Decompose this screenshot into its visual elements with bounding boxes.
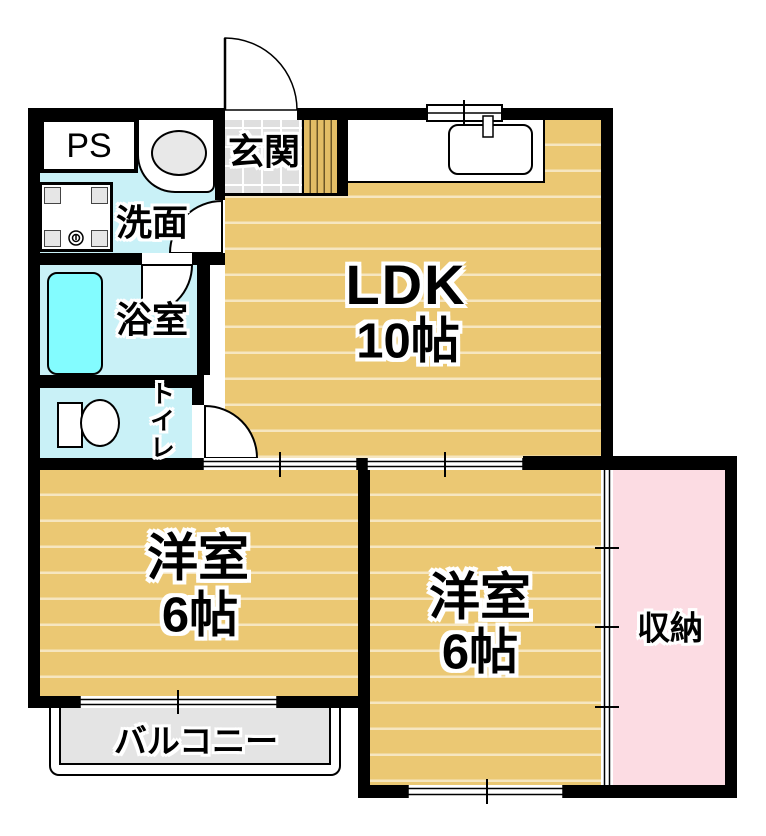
wall-ldk-right: [601, 108, 613, 470]
ldk-size-label: 10帖: [356, 318, 460, 367]
entrance-label: 玄関: [228, 134, 300, 170]
bedroom-left-label: 洋室: [147, 533, 249, 584]
wall-room-divider: [358, 458, 370, 798]
balcony-label: バルコニー: [114, 725, 278, 758]
entrance-door-arc-icon: [225, 38, 297, 110]
wall-mid-left: [28, 458, 203, 470]
ldk-label: LDK: [345, 257, 466, 313]
pan-corner-icon: [44, 230, 61, 247]
wall-bottom-right-b: [563, 785, 737, 798]
wall-top-right: [297, 108, 613, 120]
storage-label: 収納: [637, 612, 703, 645]
bedroom-left-size-label: 6帖: [162, 592, 238, 641]
washer-pan: [39, 182, 113, 252]
washroom-doorway-gap: [215, 200, 225, 253]
wall-toilet-right: [192, 375, 204, 458]
washbasin-icon: [151, 130, 207, 176]
pan-corner-icon: [91, 187, 108, 204]
kitchen-sink: [448, 124, 533, 175]
washroom-label: 洗面: [116, 205, 188, 241]
wall-wash-bath-a: [28, 253, 142, 265]
sliding-door-left: [203, 458, 357, 470]
pan-corner-icon: [44, 187, 61, 204]
wall-bottom-left-b: [277, 696, 370, 708]
floor-plan: PS 玄関 洗面 浴室 トイレ LDK 10帖 洋室 6帖 洋室 6帖 収納 バ…: [0, 0, 766, 836]
pipe-space-label: PS: [66, 129, 111, 163]
wall-right-outer: [725, 456, 737, 798]
bathroom-doorway-gap: [142, 253, 192, 265]
sliding-door-right: [367, 458, 523, 470]
washbasin-vanity: [137, 120, 215, 193]
wall-washroom-right: [215, 108, 225, 200]
wall-left-outer: [28, 108, 40, 708]
bathtub-icon: [47, 272, 103, 375]
wall-bottom-left-a: [28, 696, 80, 708]
wall-bottom-right-a: [358, 785, 408, 798]
pan-corner-icon: [91, 230, 108, 247]
wall-top-left: [28, 108, 225, 120]
bedroom-right-label: 洋室: [429, 572, 531, 623]
storage-sliding-door: [601, 470, 613, 785]
bedroom-right-window: [408, 785, 563, 798]
wall-mid-right: [523, 456, 737, 470]
wall-bathroom-right: [197, 253, 210, 375]
toilet-bowl-icon: [80, 399, 120, 447]
bathroom-side-gap: [210, 265, 225, 375]
balcony-window: [80, 696, 277, 708]
bedroom-right-size-label: 6帖: [442, 629, 518, 678]
toilet-label: トイレ: [148, 381, 173, 462]
toilet-side-gap: [204, 388, 225, 458]
entrance-step: [302, 110, 337, 196]
bathroom-label: 浴室: [116, 302, 188, 338]
